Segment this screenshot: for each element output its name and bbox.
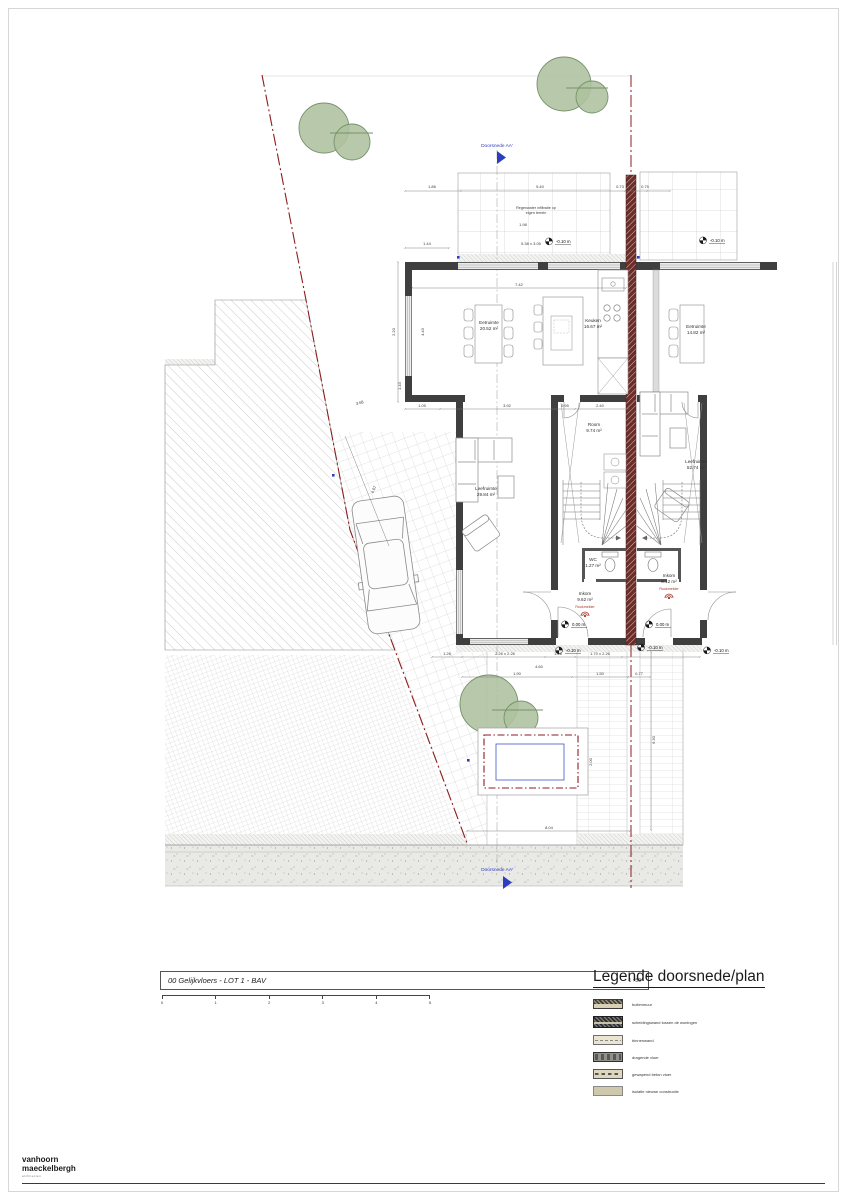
smoke-detector-label: Rookmelder (575, 605, 595, 609)
legend-swatch (593, 1069, 623, 1079)
room-label: Eetruimte (686, 324, 706, 329)
level-label: 0.00 m (656, 622, 670, 627)
room-area: 20.52 m² (480, 326, 499, 331)
dimension-label: 4.60 (535, 664, 544, 669)
legend-title: Legende doorsnede/plan (593, 968, 765, 988)
title-block: 00 Gelijkvloers - LOT 1 - BAV 1 : 50 (160, 971, 649, 990)
smoke-detector-icon (584, 615, 586, 617)
dimension-label: 1.50 (596, 671, 605, 676)
dimension-label: 3.68 (355, 399, 365, 406)
dimension-label: 2.00 (588, 757, 593, 766)
level-label: -0.10 m (714, 648, 729, 653)
stair-direction-arrow (616, 536, 621, 541)
note-label: Regenwater infiltratie op (516, 206, 556, 210)
legend-row: binnenwand (593, 1035, 828, 1045)
door-opening (564, 395, 580, 402)
room-area: 52.74 m² (687, 465, 706, 470)
dimension-label: 2.26 x 2.26 (495, 651, 516, 656)
scale-bar: 012345 (162, 995, 430, 1005)
dining-set-lot1 (464, 305, 513, 363)
chair (464, 309, 473, 321)
room-label: Inkom (579, 591, 592, 596)
legend-label: isolatie nieuwe constructie (632, 1089, 679, 1094)
logo-subtitle: architecten (22, 1174, 76, 1178)
dimension-label: 1.98 (519, 222, 528, 227)
room-label: Eetruimte (479, 320, 499, 325)
legend-row: isolatie nieuwe constructie (593, 1086, 828, 1096)
car-mirror (414, 575, 419, 582)
stairs-lot1 (563, 480, 626, 545)
note-label: eigen terrein (526, 211, 547, 215)
dimension-label: 3.92 (503, 403, 512, 408)
window (406, 296, 412, 376)
room-label: WC (589, 557, 597, 562)
section-arrow-icon (497, 151, 506, 164)
dimension-label: 2.20 (391, 327, 396, 336)
rear-threshold-band (457, 254, 637, 262)
stair-direction-arrow (642, 536, 647, 541)
washer-dryer (604, 454, 626, 488)
dimension-label: 2.40 (596, 403, 605, 408)
neighbor-step-band (165, 359, 215, 365)
level-label: -0.10 m (710, 238, 725, 243)
sofa-lot2 (640, 392, 688, 456)
drawing-title: 00 Gelijkvloers - LOT 1 - BAV (168, 976, 266, 985)
section-label-top: Doorsnede AA' (481, 143, 513, 149)
side-table (670, 428, 686, 448)
door-opening (700, 590, 707, 620)
legend-swatch (593, 1016, 623, 1028)
sink-drain (611, 282, 615, 286)
legend-label: gewapend beton vloer (632, 1072, 671, 1077)
drawing-sheet: Doorsnede AA' Doorsnede AA' 1.865.400.73… (0, 0, 847, 1200)
chair (464, 345, 473, 357)
dimension-label: 5.38 x 3.05 (521, 241, 542, 246)
side-table (498, 476, 514, 498)
legend-swatch (593, 1052, 623, 1062)
room-area: 9.74 m² (586, 428, 602, 433)
tree (299, 103, 373, 160)
front-door-opening (645, 638, 673, 645)
dining-table (475, 305, 502, 363)
window (470, 639, 528, 644)
dimension-label: 4.43 (420, 327, 425, 336)
terrace-lot2 (640, 172, 737, 260)
legend-swatch (593, 999, 623, 1009)
tree (537, 57, 608, 113)
legend: Legende doorsnede/plan buitenmuurscheidi… (593, 968, 828, 1103)
smoke-detector-icon (668, 597, 670, 599)
terrace-lot1 (458, 173, 610, 260)
dimension-label: 1.26 (443, 651, 452, 656)
dimension-label: 7.42 (515, 282, 524, 287)
toilet-icon (645, 552, 661, 572)
room-area: 29.84 m² (477, 492, 496, 497)
road-surface (165, 845, 683, 886)
chair (504, 345, 513, 357)
window (457, 570, 463, 634)
architect-logo: vanhoorn maeckelbergh architecten (22, 1156, 76, 1178)
level-label: -0.10 m (556, 239, 571, 244)
room-area: 1.27 m² (585, 563, 601, 568)
dimension-label: 1.43 (397, 381, 402, 390)
car-mirror (358, 582, 363, 589)
garden-terrace (478, 728, 588, 795)
dimension-label: 1.05 (418, 403, 427, 408)
dimension-label: 1.70 x 2.26 (590, 651, 611, 656)
curb-band-right (577, 834, 683, 845)
curb-band-left (165, 834, 467, 845)
level-label: 0.00 m (572, 622, 586, 627)
legend-row: scheidingswand tussen de woningen (593, 1016, 828, 1028)
chair (669, 309, 678, 321)
room-label: Room (588, 422, 600, 427)
dimension-label: 0.95 (561, 403, 570, 408)
armchair-lot1 (461, 514, 500, 553)
dimension-label: 1.90 (513, 671, 522, 676)
legend-rows: buitenmuurscheidingswand tussen de wonin… (593, 999, 828, 1096)
front-door-opening (556, 638, 588, 645)
dimension-label: 6.30 (651, 735, 656, 744)
level-label: -0.10 m (566, 648, 581, 653)
garden-path-lot2 (640, 650, 683, 845)
room-area: 9.62 m² (577, 597, 593, 602)
dimension-label: 0.77 (635, 671, 644, 676)
room-label: Inkom (663, 573, 676, 578)
window (458, 263, 538, 269)
island-hob (554, 320, 569, 333)
dimension-label: 0.75 (641, 184, 650, 189)
road (165, 845, 683, 886)
party-wall (626, 175, 636, 645)
room-label: Leefruimte (475, 486, 497, 491)
bar-stools (534, 305, 542, 349)
dimension-label: 1.86 (428, 184, 437, 189)
section-label-bottom: Doorsnede AA' (481, 867, 513, 873)
chair (504, 309, 513, 321)
room-area: 8.12 m² (661, 579, 677, 584)
window (660, 263, 760, 269)
room-label: Leefruimte (685, 459, 707, 464)
kitchen (534, 270, 628, 394)
legend-label: dragende vloer (632, 1055, 659, 1060)
logo-line2: maeckelbergh (22, 1165, 76, 1174)
car-roof (363, 538, 409, 589)
dimension-label: 0.73 (616, 184, 625, 189)
window (548, 263, 620, 269)
interior-wall-h-lot1 (551, 395, 626, 402)
room-area: 16.67 m² (584, 324, 603, 329)
dimension-label: 5.40 (536, 184, 545, 189)
level-label: -0.10 m (648, 645, 663, 650)
legend-label: binnenwand (632, 1038, 654, 1043)
lot2-wall-stub (653, 270, 659, 392)
chair (669, 327, 678, 339)
tree (460, 675, 543, 735)
dimension-label: 8.04 (545, 825, 554, 830)
dimension-label: 1.44 (423, 241, 432, 246)
toilet-icon (602, 552, 618, 572)
next-unit-facade (833, 262, 837, 645)
footer-rule (22, 1183, 825, 1184)
legend-swatch (593, 1035, 623, 1045)
smoke-detector-label: Rookmelder (659, 587, 679, 591)
room-label: Keuken (585, 318, 601, 323)
chair (669, 345, 678, 357)
chair (464, 327, 473, 339)
legend-swatch (593, 1086, 623, 1096)
legend-row: buitenmuur (593, 999, 828, 1009)
terrace-outline (478, 728, 588, 795)
legend-label: scheidingswand tussen de woningen (632, 1020, 697, 1025)
room-area: 14.82 m² (687, 330, 706, 335)
legend-row: dragende vloer (593, 1052, 828, 1062)
chair (504, 327, 513, 339)
legend-row: gewapend beton vloer (593, 1069, 828, 1079)
door-opening (551, 590, 558, 620)
legend-label: buitenmuur (632, 1002, 652, 1007)
